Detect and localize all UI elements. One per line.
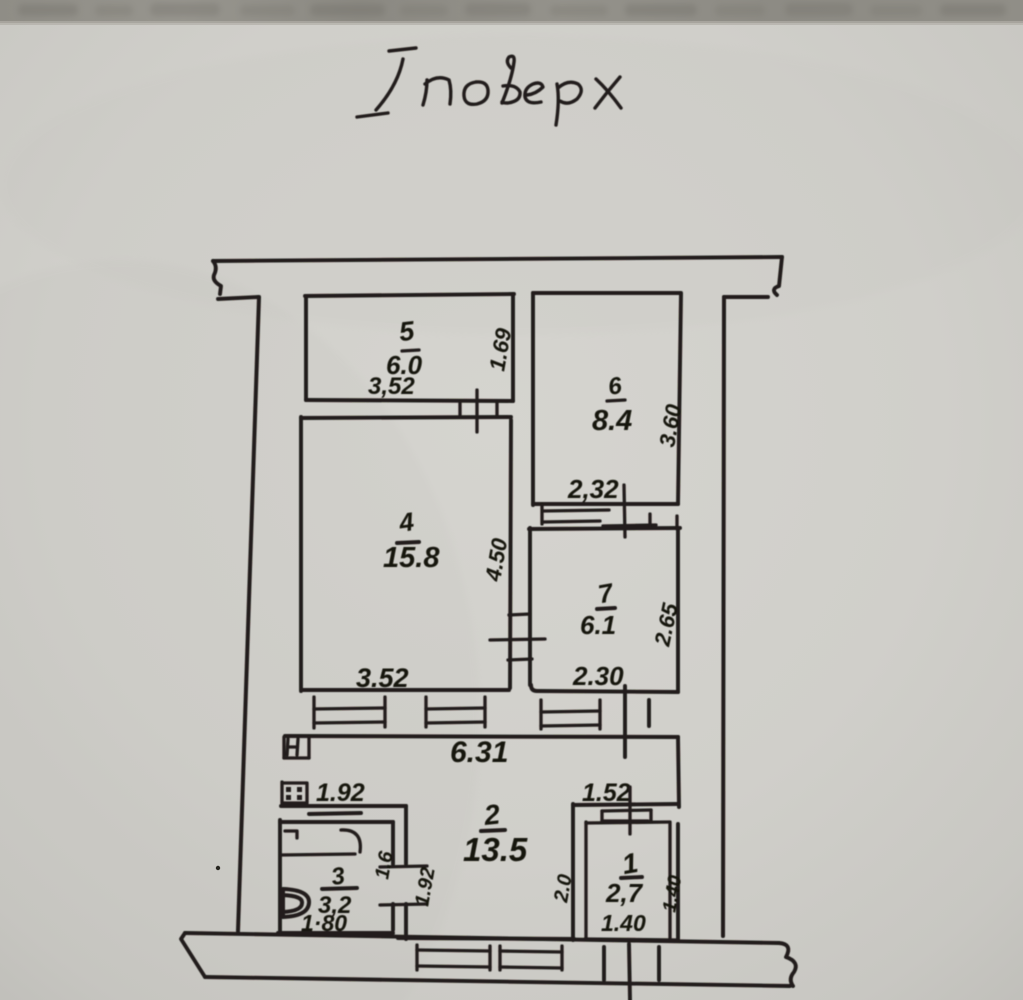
svg-text:2.30: 2.30	[572, 661, 624, 691]
svg-text:2,7: 2,7	[605, 878, 644, 908]
svg-text:3.52: 3.52	[356, 663, 409, 693]
svg-text:1·80: 1·80	[301, 910, 347, 936]
svg-text:13.5: 13.5	[463, 831, 528, 868]
svg-text:1.40: 1.40	[601, 910, 646, 936]
svg-text:6.1: 6.1	[580, 610, 616, 640]
svg-text:1.92: 1.92	[316, 779, 365, 807]
svg-text:6.31: 6.31	[450, 736, 508, 769]
svg-text:15.8: 15.8	[383, 542, 440, 574]
svg-text:3,52: 3,52	[368, 373, 415, 400]
svg-text:2,32: 2,32	[567, 474, 619, 504]
svg-text:8.4: 8.4	[592, 405, 632, 437]
